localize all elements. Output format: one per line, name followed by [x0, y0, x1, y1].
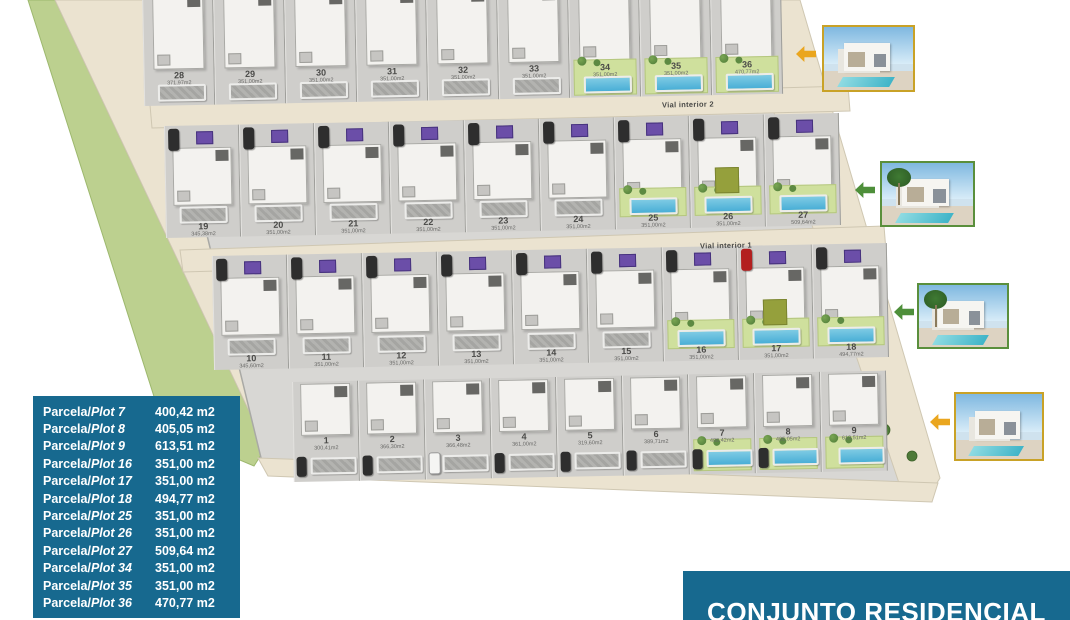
car [216, 259, 227, 281]
legend-plot-label: Parcela/Plot 8 [43, 422, 155, 436]
car [168, 129, 179, 151]
plot-area: 319,60m2 [558, 441, 622, 448]
plot-number: 16 [665, 344, 738, 354]
plot-8: 8405,05m2 [754, 372, 822, 473]
house-footprint [152, 0, 204, 70]
plot-label: 7400,42m2 [690, 428, 754, 445]
car [291, 257, 302, 279]
plot-29: 29351,00m2 [213, 0, 286, 105]
legend-plot-label: Parcela/Plot 36 [43, 596, 155, 610]
plot-1: 1300,41m2 [292, 381, 360, 482]
legend-plot-label: Parcela/Plot 34 [43, 561, 155, 575]
solar-panel [346, 128, 363, 141]
car [296, 457, 306, 477]
car [362, 455, 372, 475]
plot-26: 26351,00m2 [689, 114, 766, 227]
plot-label: 3366,48m2 [426, 433, 490, 450]
car [758, 448, 768, 468]
legend-plot-label: Parcela/Plot 17 [43, 474, 155, 488]
plot-label: 18494,77m2 [815, 342, 888, 359]
villa-photo-3 [917, 283, 1009, 349]
pool [442, 454, 488, 472]
plot-label: 10345,60m2 [215, 353, 288, 370]
plot-35: 35351,00m2 [639, 0, 712, 96]
villa-photo-4 [954, 392, 1044, 461]
solar-panel [844, 250, 861, 263]
house-footprint [247, 145, 307, 204]
house-footprint [472, 141, 532, 200]
plot-row-plots-1-9: 1300,41m22366,30m23366,48m24361,00m25319… [292, 371, 888, 482]
pool [376, 456, 422, 474]
plot-6: 6389,71m2 [622, 374, 690, 475]
plot-label: 27509,64m2 [767, 210, 840, 227]
plot-20: 20351,00m2 [239, 123, 316, 236]
villa-pool [837, 77, 894, 87]
legend-plot-label: Parcela/Plot 9 [43, 439, 155, 453]
plot-label: 6389,71m2 [624, 429, 688, 446]
plot-label: 17351,00m2 [740, 343, 813, 360]
plot-25: 25351,00m2 [614, 116, 691, 229]
house-footprint [300, 383, 351, 436]
plot-14: 14351,00m2 [512, 249, 589, 364]
house-footprint [720, 0, 772, 59]
house-footprint [295, 275, 355, 334]
plot-number: 13 [440, 349, 513, 359]
solar-panel [571, 124, 588, 137]
house-footprint [828, 373, 879, 426]
plot-15: 15351,00m2 [587, 247, 664, 362]
solar-panel [796, 120, 813, 133]
car [366, 256, 377, 278]
plot-34: 34351,00m2 [568, 0, 641, 98]
plot-number: 27 [767, 210, 840, 220]
legend-plot-area: 351,00 m2 [155, 457, 230, 471]
plot-number: 17 [740, 343, 813, 353]
plot-number: 11 [290, 352, 363, 362]
car [543, 122, 554, 144]
plot-label: 31351,00m2 [358, 67, 427, 84]
plot-23: 23351,00m2 [464, 119, 541, 232]
villa-photo-1 [822, 25, 915, 92]
house-footprint [365, 0, 417, 66]
palm-tree [887, 168, 911, 187]
plot-number: 21 [317, 218, 390, 228]
house-footprint [322, 144, 382, 203]
plot-area: 300,41m2 [294, 446, 358, 453]
legend-row-plot-26: Parcela/Plot 26351,00 m2 [33, 525, 240, 542]
villa-pool [932, 335, 989, 345]
solar-panel [769, 251, 786, 264]
legend-plot-area: 509,64 m2 [155, 544, 230, 558]
plot-number: 23 [467, 215, 540, 225]
car [693, 119, 704, 141]
legend-row-plot-7: Parcela/Plot 7400,42 m2 [33, 403, 240, 420]
plot-legend: Parcela/Plot 7400,42 m2Parcela/Plot 8405… [33, 396, 240, 618]
house-footprint [498, 379, 549, 432]
plot-row-plots-28-36: 28371,97m229351,00m230351,00m231351,00m2… [142, 0, 783, 106]
plot-21: 21351,00m2 [314, 122, 391, 235]
legend-plot-area: 613,51 m2 [155, 439, 230, 453]
legend-plot-area: 400,42 m2 [155, 405, 230, 419]
car [692, 449, 702, 469]
legend-row-plot-8: Parcela/Plot 8405,05 m2 [33, 420, 240, 437]
road-label-vial-1: Vial interior 1 [700, 241, 752, 251]
legend-plot-area: 351,00 m2 [155, 509, 230, 523]
solar-panel [244, 261, 261, 274]
legend-plot-label: Parcela/Plot 16 [43, 457, 155, 471]
project-title: CONJUNTO RESIDENCIAL [683, 597, 1070, 620]
plot-19: 19345,38m2 [164, 125, 241, 238]
car [428, 452, 440, 474]
villa-pool [896, 213, 954, 223]
house-footprint [696, 375, 747, 428]
plot-label: 22351,00m2 [392, 217, 465, 234]
plot-area: 361,00m2 [492, 442, 556, 449]
plot-label: 13351,00m2 [440, 349, 513, 366]
road-label-vial-2: Vial interior 2 [662, 100, 714, 110]
plot-24: 24351,00m2 [539, 117, 616, 230]
plot-33: 33351,00m2 [497, 0, 570, 99]
plot-label: 26351,00m2 [692, 211, 765, 228]
legend-plot-area: 351,00 m2 [155, 526, 230, 540]
car [494, 453, 504, 473]
villa-building [938, 301, 984, 328]
plot-31: 31351,00m2 [355, 0, 428, 102]
solar-panel [619, 254, 636, 267]
solar-panel [694, 252, 711, 265]
house-footprint [547, 140, 607, 199]
legend-row-plot-25: Parcela/Plot 25351,00 m2 [33, 507, 240, 524]
legend-plot-label: Parcela/Plot 25 [43, 509, 155, 523]
plot-number: 22 [392, 217, 465, 227]
plot-17: 17351,00m2 [737, 244, 814, 359]
plot-22: 22351,00m2 [389, 120, 466, 233]
plot-2: 2366,30m2 [358, 379, 426, 480]
plot-label: 8405,05m2 [756, 427, 820, 444]
villa-photo-2 [880, 161, 975, 227]
house-footprint [432, 380, 483, 433]
plot-number: 18 [815, 342, 888, 352]
legend-row-plot-35: Parcela/Plot 35351,00 m2 [33, 577, 240, 594]
plot-label: 24351,00m2 [542, 214, 615, 231]
plot-label: 1300,41m2 [294, 436, 358, 453]
house-footprint [762, 374, 813, 427]
house-footprint [578, 0, 630, 62]
plot-label: 9613,51m2 [822, 426, 886, 443]
house-footprint [595, 270, 655, 329]
plot-row-plots-19-27: 19345,38m220351,00m221351,00m222351,00m2… [164, 113, 841, 238]
plot-label: 5319,60m2 [558, 431, 622, 448]
solar-panel [319, 260, 336, 273]
pool [640, 450, 686, 468]
plot-18: 18494,77m2 [812, 243, 889, 358]
car [768, 117, 779, 139]
plot-label: 21351,00m2 [317, 218, 390, 235]
plot-10: 10345,60m2 [212, 255, 289, 370]
legend-row-plot-34: Parcela/Plot 34351,00 m2 [33, 560, 240, 577]
villa-building [975, 411, 1020, 440]
pool [706, 449, 752, 467]
car [666, 250, 677, 272]
plot-number: 19 [167, 221, 240, 231]
plot-label: 11351,00m2 [290, 352, 363, 369]
plot-number: 26 [692, 211, 765, 221]
plot-label: 20351,00m2 [242, 220, 315, 237]
plot-16: 16351,00m2 [662, 246, 739, 361]
house-footprint [649, 0, 701, 60]
plot-label: 29351,00m2 [216, 69, 285, 86]
solar-panel [421, 127, 438, 140]
villa-building [844, 43, 890, 71]
house-footprint [294, 0, 346, 67]
car [560, 452, 570, 472]
solar-panel [646, 122, 663, 135]
plot-36: 36470,77m2 [710, 0, 783, 95]
house-footprint [370, 274, 430, 333]
plot-label: 33351,00m2 [499, 64, 568, 81]
plot-area: 389,71m2 [624, 439, 688, 446]
villa-building [902, 179, 949, 206]
pool [310, 457, 356, 475]
palm-tree [924, 290, 947, 309]
plot-number: 24 [542, 214, 615, 224]
legend-plot-label: Parcela/Plot 26 [43, 526, 155, 540]
plot-32: 32351,00m2 [426, 0, 499, 101]
plot-row-plots-10-18: 10345,60m211351,00m212351,00m213351,00m2… [212, 243, 889, 370]
house-footprint [220, 277, 280, 336]
legend-plot-area: 351,00 m2 [155, 579, 230, 593]
solar-panel [394, 258, 411, 271]
pool [838, 447, 884, 465]
house-footprint [564, 378, 615, 431]
pool [772, 448, 818, 466]
plot-label: 35351,00m2 [641, 61, 710, 78]
house-footprint [223, 0, 275, 68]
plot-label: 2366,30m2 [360, 434, 424, 451]
solar-panel [721, 121, 738, 134]
legend-row-plot-17: Parcela/Plot 17351,00 m2 [33, 473, 240, 490]
house-footprint [397, 142, 457, 201]
site-plan-page: 28371,97m229351,00m230351,00m231351,00m2… [0, 0, 1070, 620]
solar-panel [496, 125, 513, 138]
solar-panel [196, 131, 213, 144]
plot-label: 16351,00m2 [665, 344, 738, 361]
legend-plot-area: 351,00 m2 [155, 474, 230, 488]
plot-label: 4361,00m2 [492, 432, 556, 449]
plot-number: 20 [242, 220, 315, 230]
car [393, 124, 404, 146]
legend-plot-area: 351,00 m2 [155, 561, 230, 575]
solar-panel [271, 130, 288, 143]
legend-plot-area: 494,77 m2 [155, 492, 230, 506]
plot-13: 13351,00m2 [437, 250, 514, 365]
plot-label: 19345,38m2 [167, 221, 240, 238]
legend-row-plot-16: Parcela/Plot 16351,00 m2 [33, 455, 240, 472]
villa-pool [968, 446, 1024, 456]
pool [574, 452, 620, 470]
plot-area: 366,48m2 [426, 443, 490, 450]
plot-number: 12 [365, 350, 438, 360]
pool [508, 453, 554, 471]
car [741, 249, 752, 271]
house-footprint [520, 271, 580, 330]
house-footprint [436, 0, 488, 64]
plot-label: 36470,77m2 [712, 60, 781, 77]
car [591, 252, 602, 274]
plot-3: 3366,48m2 [424, 378, 492, 479]
car [243, 127, 254, 149]
plot-27: 27509,64m2 [764, 113, 841, 226]
legend-row-plot-36: Parcela/Plot 36470,77 m2 [33, 594, 240, 611]
plot-label: 14351,00m2 [515, 347, 588, 364]
plot-5: 5319,60m2 [556, 376, 624, 477]
legend-plot-area: 470,77 m2 [155, 596, 230, 610]
legend-row-plot-9: Parcela/Plot 9613,51 m2 [33, 438, 240, 455]
plot-12: 12351,00m2 [362, 252, 439, 367]
solar-panel [544, 255, 561, 268]
legend-plot-label: Parcela/Plot 27 [43, 544, 155, 558]
car [468, 123, 479, 145]
plot-28: 28371,97m2 [142, 0, 215, 106]
project-title-box: CONJUNTO RESIDENCIAL [683, 571, 1070, 620]
plot-9: 9613,51m2 [820, 371, 888, 472]
car [318, 126, 329, 148]
car [626, 450, 636, 470]
plot-number: 15 [590, 346, 663, 356]
olive-patch [715, 167, 739, 193]
car [516, 253, 527, 275]
house-footprint [630, 377, 681, 430]
plot-area: 366,30m2 [360, 444, 424, 451]
plot-number: 10 [215, 353, 288, 363]
olive-patch [763, 299, 787, 325]
legend-plot-label: Parcela/Plot 35 [43, 579, 155, 593]
plot-label: 34351,00m2 [570, 62, 639, 79]
house-footprint [172, 147, 232, 206]
legend-plot-label: Parcela/Plot 7 [43, 405, 155, 419]
house-footprint [366, 382, 417, 435]
legend-plot-label: Parcela/Plot 18 [43, 492, 155, 506]
plot-label: 12351,00m2 [365, 350, 438, 367]
plot-30: 30351,00m2 [284, 0, 357, 103]
plot-label: 32351,00m2 [429, 65, 498, 82]
plot-label: 28371,97m2 [145, 71, 214, 88]
legend-plot-area: 405,05 m2 [155, 422, 230, 436]
legend-row-plot-18: Parcela/Plot 18494,77 m2 [33, 490, 240, 507]
plot-label: 15351,00m2 [590, 346, 663, 363]
house-footprint [445, 272, 505, 331]
car [441, 254, 452, 276]
plot-label: 30351,00m2 [287, 68, 356, 85]
plot-label: 23351,00m2 [467, 215, 540, 232]
plot-11: 11351,00m2 [287, 253, 364, 368]
plot-7: 7400,42m2 [688, 373, 756, 474]
solar-panel [469, 257, 486, 270]
plot-label: 25351,00m2 [617, 212, 690, 229]
house-footprint [507, 0, 559, 63]
legend-row-plot-27: Parcela/Plot 27509,64 m2 [33, 542, 240, 559]
car [618, 120, 629, 142]
plot-4: 4361,00m2 [490, 377, 558, 478]
plot-number: 14 [515, 347, 588, 357]
plot-number: 25 [617, 212, 690, 222]
car [816, 247, 827, 269]
